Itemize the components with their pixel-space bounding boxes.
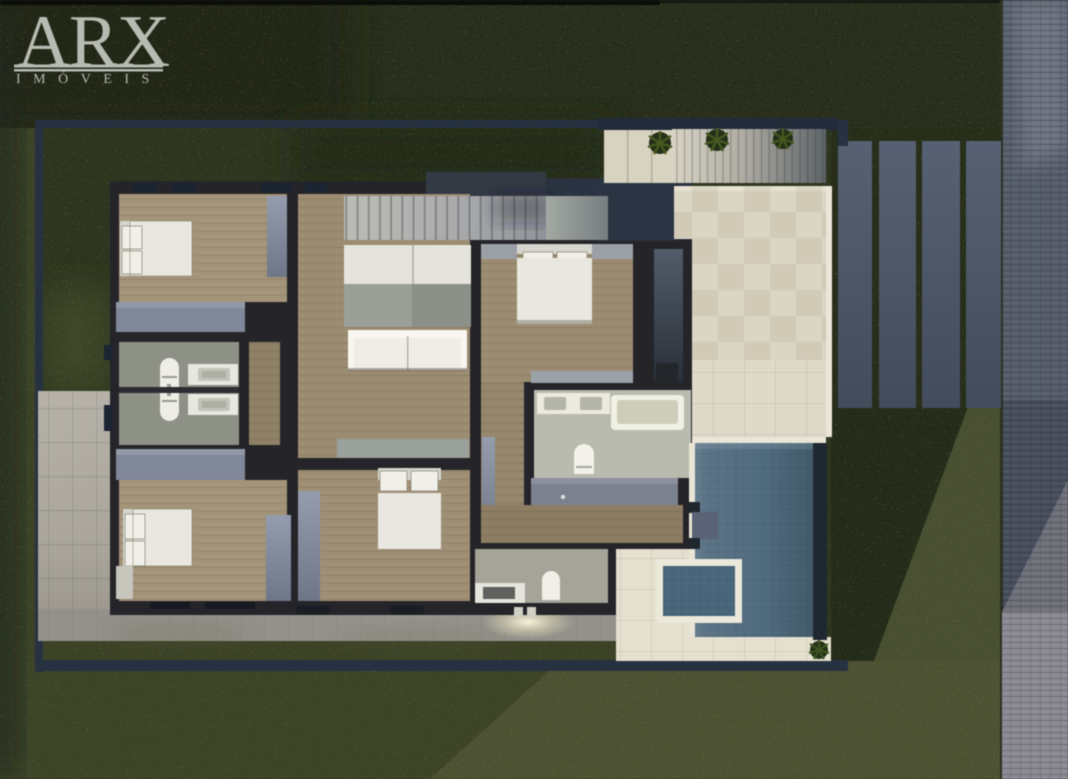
- svg-text:IMÓVEIS: IMÓVEIS: [16, 70, 162, 87]
